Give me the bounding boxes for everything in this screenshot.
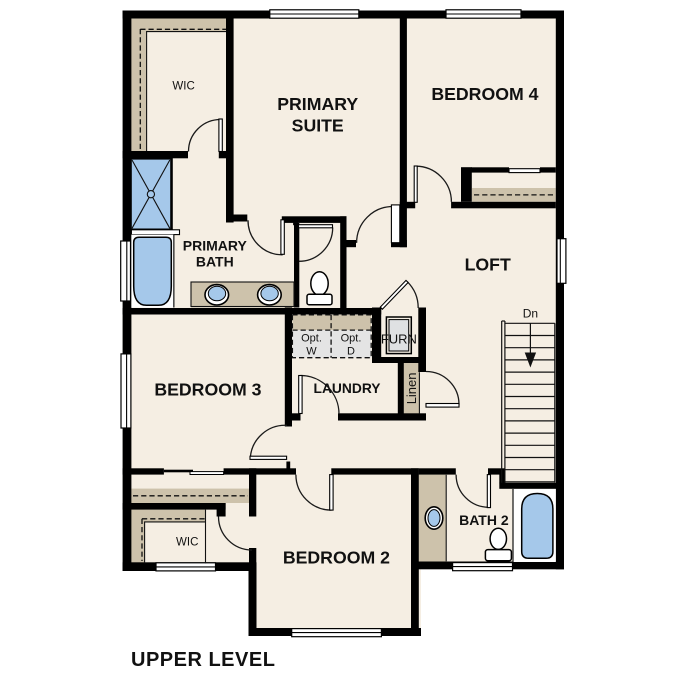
svg-text:LAUNDRY: LAUNDRY — [314, 381, 381, 396]
svg-text:BATH: BATH — [196, 254, 234, 270]
svg-text:BEDROOM 3: BEDROOM 3 — [154, 380, 261, 400]
svg-text:PRIMARY: PRIMARY — [183, 238, 248, 254]
svg-text:FURN: FURN — [381, 332, 417, 347]
svg-text:Opt.: Opt. — [301, 333, 322, 345]
svg-text:Dn: Dn — [523, 307, 538, 321]
svg-text:BEDROOM 4: BEDROOM 4 — [431, 84, 538, 104]
svg-text:PRIMARY: PRIMARY — [277, 94, 358, 114]
svg-text:UPPER LEVEL: UPPER LEVEL — [131, 649, 275, 671]
svg-text:W: W — [306, 346, 317, 358]
svg-text:BEDROOM 2: BEDROOM 2 — [283, 548, 390, 568]
svg-text:D: D — [347, 346, 355, 358]
svg-text:BATH 2: BATH 2 — [459, 512, 509, 528]
svg-text:WIC: WIC — [172, 81, 194, 93]
svg-text:SUITE: SUITE — [292, 116, 344, 136]
svg-text:Linen: Linen — [404, 372, 419, 404]
svg-text:WIC: WIC — [176, 536, 198, 548]
svg-text:Opt.: Opt. — [341, 333, 362, 345]
svg-text:LOFT: LOFT — [465, 254, 511, 274]
